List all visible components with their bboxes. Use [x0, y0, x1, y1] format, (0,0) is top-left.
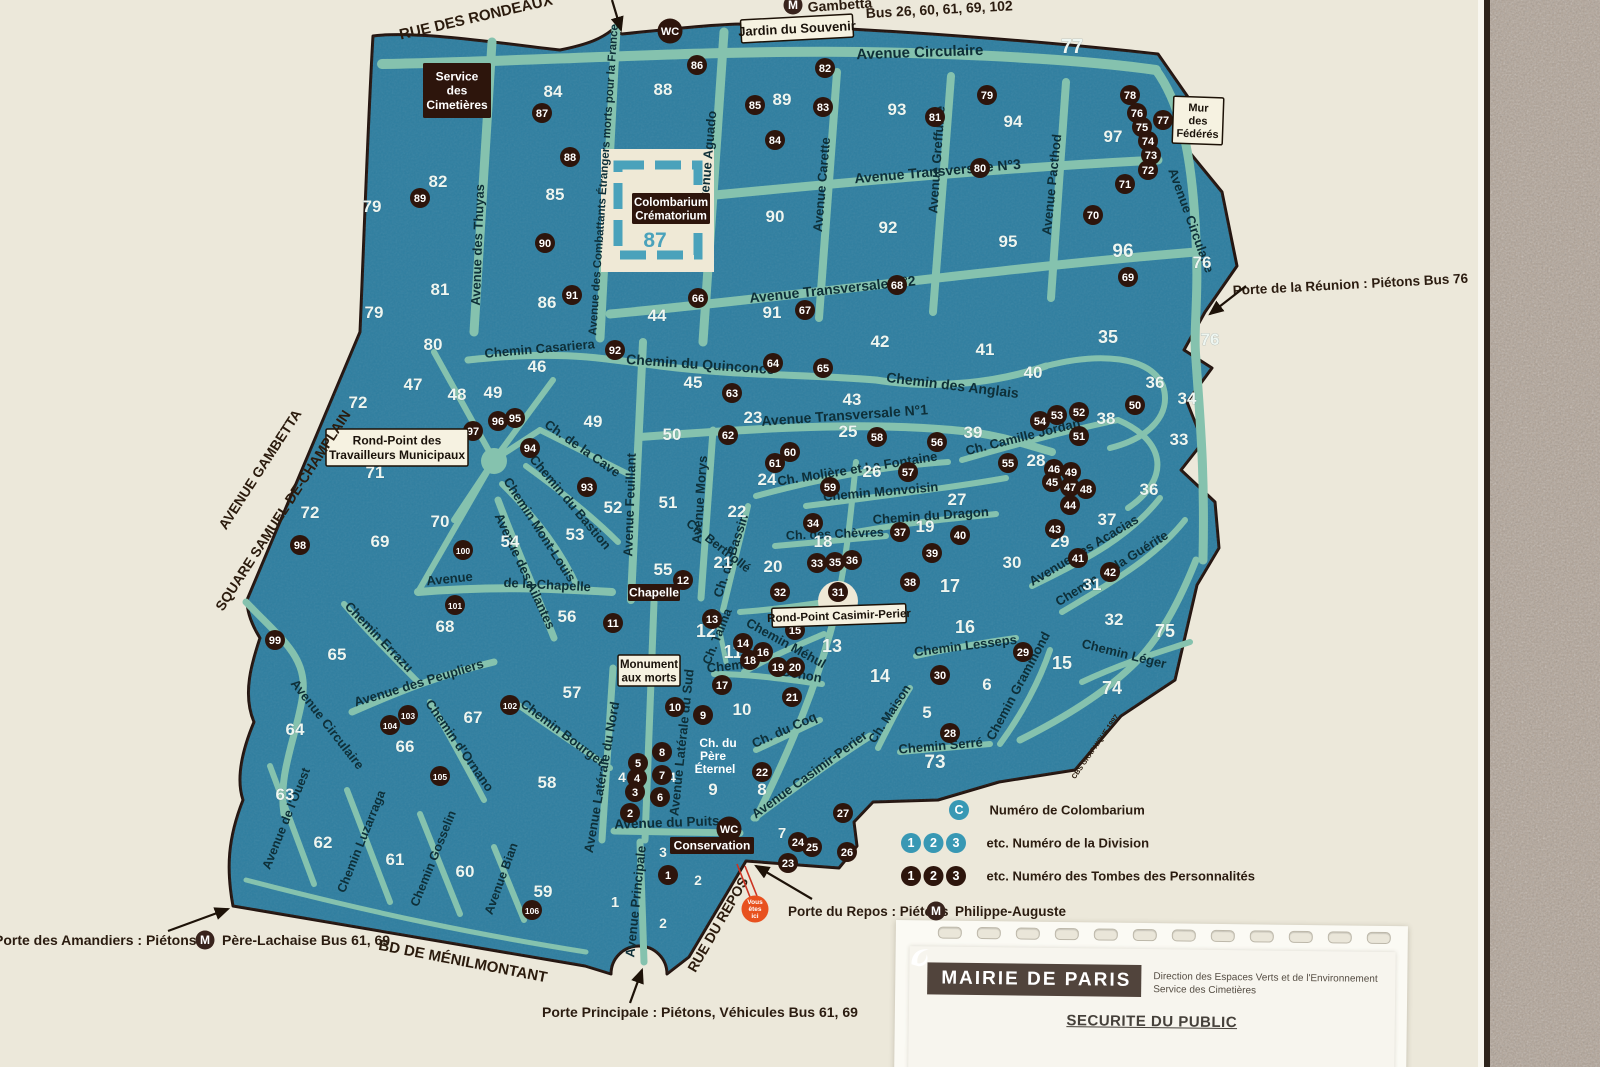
tomb-marker: 67 [795, 300, 815, 320]
svg-text:19: 19 [772, 662, 784, 674]
dark-sign: Conservation [670, 837, 754, 854]
division-number: 79 [363, 197, 382, 216]
division-number: 8 [757, 780, 766, 799]
dark-sign: ColombariumCrématorium [632, 193, 710, 224]
svg-text:79: 79 [981, 90, 993, 102]
division-number: 38 [1097, 409, 1116, 428]
street-label: Ch. du [699, 736, 736, 750]
division-number: 2 [694, 872, 702, 888]
division-number: 60 [456, 862, 475, 881]
street-label: Éternel [695, 761, 736, 776]
colombarium-number: 87 [643, 229, 666, 252]
division-number: 72 [301, 503, 320, 522]
division-number: 48 [448, 385, 467, 404]
svg-text:44: 44 [1064, 500, 1077, 512]
tomb-marker: 96 [488, 411, 508, 431]
svg-text:53: 53 [1051, 410, 1063, 422]
svg-text:28: 28 [944, 728, 956, 740]
svg-text:56: 56 [931, 437, 943, 449]
division-number: 40 [1024, 363, 1043, 382]
gate-annotation: Porte Principale : Piétons, Véhicules Bu… [542, 1004, 858, 1020]
tomb-marker: 52 [1069, 402, 1089, 422]
division-number: 76 [1193, 253, 1212, 272]
svg-text:92: 92 [609, 345, 621, 357]
svg-text:40: 40 [954, 530, 966, 542]
tomb-marker: 30 [930, 665, 950, 685]
svg-text:3: 3 [632, 787, 638, 799]
division-number: 52 [604, 498, 623, 517]
tomb-marker: 26 [837, 842, 857, 862]
department-lines: Direction des Espaces Verts et de l'Envi… [1153, 965, 1378, 999]
punched-hole [1328, 931, 1352, 943]
division-number: 14 [870, 666, 890, 686]
punched-hole [1250, 930, 1274, 942]
svg-text:WC: WC [661, 26, 679, 38]
tomb-marker: 45 [1042, 472, 1062, 492]
division-number: 33 [1170, 430, 1189, 449]
division-number: 89 [773, 90, 792, 109]
document-title: SECURITE DU PUBLIC [909, 1010, 1395, 1033]
svg-text:71: 71 [1119, 179, 1131, 191]
division-number: 20 [764, 557, 783, 576]
legend-label: Numéro de Colombarium [990, 803, 1145, 818]
svg-text:65: 65 [817, 363, 829, 375]
division-number: 80 [424, 335, 443, 354]
division-number: 67 [464, 708, 483, 727]
svg-text:88: 88 [564, 152, 576, 164]
svg-text:41: 41 [1072, 553, 1084, 565]
tomb-marker: 33 [807, 553, 827, 573]
svg-text:102: 102 [503, 701, 517, 711]
dark-sign: Chapelle [628, 584, 680, 601]
division-number: 93 [888, 100, 907, 119]
svg-text:86: 86 [691, 60, 703, 72]
svg-text:55: 55 [1002, 458, 1014, 470]
svg-text:105: 105 [433, 772, 447, 782]
tomb-marker: 81 [925, 107, 945, 127]
svg-text:106: 106 [525, 906, 539, 916]
division-number: 49 [584, 412, 603, 431]
punched-hole [1016, 927, 1040, 939]
division-number: 44 [648, 306, 667, 325]
division-number: 46 [528, 357, 547, 376]
svg-text:91: 91 [566, 290, 578, 302]
tomb-marker: 62 [718, 425, 738, 445]
dept-line-2: Service des Cimetières [1153, 983, 1377, 999]
tomb-marker: 79 [977, 85, 997, 105]
division-number: 41 [976, 340, 995, 359]
sign-text: Conservation [674, 839, 751, 853]
svg-text:72: 72 [1142, 165, 1154, 177]
mairie-title: MAIRIE DE PARIS [941, 968, 1131, 992]
svg-text:77: 77 [1157, 115, 1169, 127]
tomb-marker: 82 [815, 58, 835, 78]
cemetery-map-photo: Avenue CirculaireAvenue Transversale N°3… [0, 0, 1600, 1067]
division-number: 6 [982, 675, 991, 694]
svg-text:20: 20 [789, 662, 801, 674]
tomb-marker: 70 [1083, 205, 1103, 225]
division-number: 57 [563, 683, 582, 702]
tomb-marker: 56 [927, 432, 947, 452]
sign-text: Colombarium [634, 197, 708, 209]
division-number: 95 [999, 232, 1018, 251]
svg-text:84: 84 [769, 135, 782, 147]
svg-text:82: 82 [819, 63, 831, 75]
legend-label: etc. Numéro de la Division [987, 836, 1150, 851]
division-number: 23 [744, 408, 763, 427]
svg-text:73: 73 [1145, 150, 1157, 162]
gate-annotation: Philippe-Auguste [955, 904, 1066, 919]
tomb-marker: 65 [813, 358, 833, 378]
division-number: 32 [1105, 610, 1124, 629]
svg-text:67: 67 [799, 305, 811, 317]
tomb-marker: 35 [825, 552, 845, 572]
tomb-marker: 102 [500, 695, 520, 715]
tomb-marker: 44 [1060, 495, 1080, 515]
division-number: 45 [684, 373, 703, 392]
svg-text:33: 33 [811, 558, 823, 570]
division-number: 70 [431, 512, 450, 531]
division-number: 1 [611, 894, 619, 911]
gate-annotation: Porte des Amandiers : Piétons [0, 932, 197, 948]
punched-hole [1367, 932, 1391, 944]
tomb-marker: 24 [788, 832, 808, 852]
svg-text:100: 100 [456, 546, 470, 556]
svg-text:61: 61 [769, 458, 781, 470]
metro-icon: M [927, 902, 946, 921]
tomb-marker: 98 [290, 535, 310, 555]
wall-seam [1484, 0, 1491, 1067]
svg-text:26: 26 [841, 847, 853, 859]
svg-text:36: 36 [846, 555, 858, 567]
tomb-marker: 40 [950, 525, 970, 545]
tomb-marker: 63 [722, 383, 742, 403]
svg-text:21: 21 [786, 692, 798, 704]
tomb-marker: 23 [778, 853, 798, 873]
division-number: 5 [922, 703, 931, 722]
tomb-marker: 13 [702, 609, 722, 629]
svg-text:Vous: Vous [747, 899, 763, 906]
tomb-marker: 14 [733, 633, 753, 653]
document-sleeve: MAIRIE DE PARIS Direction des Espaces Ve… [894, 920, 1408, 1067]
svg-text:57: 57 [902, 467, 914, 479]
svg-text:103: 103 [401, 711, 415, 721]
division-number: 97 [1104, 127, 1123, 146]
division-number: 3 [659, 844, 667, 860]
tomb-marker: 21 [782, 687, 802, 707]
svg-text:69: 69 [1122, 272, 1134, 284]
punched-hole [977, 927, 1001, 939]
tomb-marker: 2 [620, 803, 640, 823]
sign-edge [1478, 0, 1485, 1067]
division-number: 82 [429, 172, 448, 191]
svg-text:85: 85 [749, 100, 761, 112]
svg-text:96: 96 [492, 416, 504, 428]
tomb-marker: 95 [505, 408, 525, 428]
division-number: 94 [1004, 112, 1023, 131]
svg-text:39: 39 [926, 548, 938, 560]
tomb-marker: 28 [940, 723, 960, 743]
svg-text:êtes: êtes [748, 906, 761, 913]
document-paper: MAIRIE DE PARIS Direction des Espaces Ve… [908, 946, 1396, 1067]
division-number: 39 [964, 423, 983, 442]
tomb-marker: 1 [658, 865, 678, 885]
legend-label: etc. Numéro des Tombes des Personnalités [987, 869, 1256, 884]
svg-text:C: C [954, 803, 963, 817]
tomb-marker: 34 [803, 513, 823, 533]
tomb-marker: 53 [1047, 405, 1067, 425]
svg-text:1: 1 [908, 869, 915, 883]
svg-text:1: 1 [908, 836, 915, 850]
tomb-marker: 69 [1118, 267, 1138, 287]
division-number: 27 [948, 490, 967, 509]
tomb-marker: 85 [745, 95, 765, 115]
division-number: 37 [1098, 510, 1117, 529]
svg-text:63: 63 [726, 388, 738, 400]
division-number: 26 [863, 462, 882, 481]
svg-text:42: 42 [1104, 567, 1116, 579]
svg-text:31: 31 [832, 587, 844, 599]
svg-text:47: 47 [1064, 482, 1076, 494]
svg-text:93: 93 [581, 482, 593, 494]
svg-text:2: 2 [627, 808, 633, 820]
svg-text:35: 35 [829, 557, 841, 569]
punched-hole [938, 927, 962, 939]
division-number: 69 [371, 532, 390, 551]
division-number: 10 [733, 700, 752, 719]
tomb-marker: 77 [1153, 110, 1173, 130]
svg-text:14: 14 [737, 638, 750, 650]
tomb-marker: 89 [410, 188, 430, 208]
division-number: 19 [916, 517, 935, 536]
division-number: 88 [654, 80, 673, 99]
svg-text:9: 9 [700, 710, 706, 722]
punched-hole [1211, 930, 1235, 942]
division-number: 92 [879, 218, 898, 237]
svg-text:13: 13 [706, 614, 718, 626]
dark-sign: ServicedesCimetières [423, 63, 491, 118]
division-number: 47 [404, 375, 423, 394]
svg-text:87: 87 [536, 108, 548, 120]
svg-text:6: 6 [657, 792, 663, 804]
tomb-marker: 64 [763, 353, 783, 373]
division-number: 17 [940, 576, 960, 596]
svg-text:7: 7 [659, 770, 665, 782]
rondpoint-travailleurs [481, 448, 507, 474]
division-number: 96 [1112, 241, 1133, 262]
division-number: 62 [314, 833, 333, 852]
division-number: 55 [654, 560, 673, 579]
svg-text:WC: WC [720, 824, 738, 836]
svg-text:45: 45 [1046, 477, 1058, 489]
division-number: 54 [501, 532, 520, 551]
mairie-logo-icon [909, 946, 931, 968]
tomb-marker: 54 [1030, 411, 1050, 431]
white-sign: MurdesFédérés [1172, 96, 1224, 145]
division-number: 15 [1052, 653, 1072, 673]
svg-text:1: 1 [665, 870, 671, 882]
division-number: 16 [955, 617, 975, 637]
sign-text: Chapelle [629, 586, 679, 600]
sign-text: Service [436, 70, 479, 84]
svg-text:94: 94 [524, 443, 537, 455]
division-number: 73 [924, 752, 945, 773]
punched-hole [1094, 928, 1118, 940]
tomb-marker: 58 [867, 427, 887, 447]
division-number: 13 [822, 636, 842, 656]
svg-text:68: 68 [891, 280, 903, 292]
tomb-marker: 57 [898, 462, 918, 482]
svg-text:3: 3 [953, 869, 960, 883]
tomb-marker: 47 [1060, 477, 1080, 497]
tomb-marker: 91 [562, 285, 582, 305]
svg-text:16: 16 [757, 647, 769, 659]
svg-text:66: 66 [692, 293, 704, 305]
sign-text: Cimetières [426, 98, 488, 112]
tomb-marker: 43 [1045, 519, 1065, 539]
division-number: 79 [365, 303, 384, 322]
tomb-marker: 16 [753, 642, 773, 662]
tomb-marker: 92 [605, 340, 625, 360]
division-number: 58 [538, 773, 557, 792]
tomb-marker: 78 [1120, 85, 1140, 105]
svg-text:59: 59 [824, 482, 836, 494]
svg-text:49: 49 [1065, 467, 1077, 479]
white-sign: Rond-Point Casimir-Perier [767, 603, 912, 627]
svg-text:81: 81 [929, 112, 941, 124]
tomb-marker: 36 [842, 550, 862, 570]
sleeve-punched-holes [896, 924, 1408, 946]
tomb-marker: 68 [887, 275, 907, 295]
map-canvas: Avenue CirculaireAvenue Transversale N°3… [0, 0, 1600, 1067]
svg-text:10: 10 [669, 702, 681, 714]
division-number: 77 [1061, 36, 1083, 58]
svg-text:5: 5 [635, 758, 641, 770]
svg-text:89: 89 [414, 193, 426, 205]
division-number: 30 [1003, 553, 1022, 572]
svg-text:54: 54 [1034, 416, 1047, 428]
sign-text: Fédérés [1176, 128, 1219, 141]
tomb-marker: 38 [900, 572, 920, 592]
punched-hole [1289, 931, 1313, 943]
tomb-marker: 72 [1138, 160, 1158, 180]
division-number: 90 [766, 207, 785, 226]
svg-text:104: 104 [383, 721, 397, 731]
division-number: 7 [778, 825, 786, 842]
division-number: 68 [436, 617, 455, 636]
division-number: 63 [276, 785, 295, 804]
svg-text:22: 22 [756, 767, 768, 779]
tomb-marker: 39 [922, 543, 942, 563]
svg-text:78: 78 [1124, 90, 1136, 102]
tomb-marker: 71 [1115, 174, 1135, 194]
tomb-marker: 86 [687, 55, 707, 75]
svg-text:27: 27 [837, 808, 849, 820]
division-number: 36 [1140, 480, 1159, 499]
division-number: 28 [1027, 451, 1046, 470]
tomb-marker: 51 [1069, 426, 1089, 446]
svg-text:23: 23 [782, 858, 794, 870]
svg-text:80: 80 [974, 163, 986, 175]
division-number: 72 [349, 393, 368, 412]
svg-text:37: 37 [894, 527, 906, 539]
division-number: 21 [714, 553, 733, 572]
division-number: 42 [871, 332, 890, 351]
tomb-marker: 50 [1125, 395, 1145, 415]
tomb-marker: 37 [890, 522, 910, 542]
sign-text: Monument [620, 659, 678, 671]
granite-texture [1490, 0, 1600, 1067]
punched-hole [1172, 929, 1196, 941]
sign-text: Travailleurs Municipaux [329, 448, 465, 462]
mairie-banner: MAIRIE DE PARIS [927, 962, 1141, 997]
tomb-marker: 9 [693, 705, 713, 725]
svg-text:83: 83 [817, 102, 829, 114]
tomb-marker: 55 [998, 453, 1018, 473]
svg-text:58: 58 [871, 432, 883, 444]
tomb-marker: 66 [688, 288, 708, 308]
division-number: 36 [1146, 373, 1165, 392]
tomb-marker: 104 [380, 715, 400, 735]
division-number: 35 [1098, 327, 1118, 347]
tomb-marker: 22 [752, 762, 772, 782]
svg-text:48: 48 [1080, 484, 1092, 496]
svg-text:3: 3 [953, 836, 960, 850]
svg-text:2: 2 [930, 836, 937, 850]
sign-text: Mur [1188, 102, 1209, 115]
tomb-marker: 41 [1068, 548, 1088, 568]
svg-text:95: 95 [509, 413, 521, 425]
division-number: 49 [484, 383, 503, 402]
tomb-marker: 93 [577, 477, 597, 497]
svg-text:60: 60 [784, 447, 796, 459]
svg-text:ici: ici [751, 913, 758, 920]
tomb-marker: 3 [625, 782, 645, 802]
svg-text:34: 34 [807, 518, 820, 530]
tomb-marker: 6 [650, 787, 670, 807]
division-number: 76 [1201, 330, 1220, 349]
tomb-marker: 83 [813, 97, 833, 117]
division-number: 91 [763, 303, 782, 322]
division-number: 84 [544, 82, 563, 101]
division-number: 25 [839, 422, 858, 441]
svg-text:11: 11 [607, 618, 619, 630]
gate-annotation: Père-Lachaise Bus 61, 69 [222, 932, 390, 948]
svg-text:2: 2 [930, 869, 937, 883]
svg-text:43: 43 [1049, 524, 1061, 536]
division-number: 66 [396, 737, 415, 756]
tomb-marker: 31 [828, 582, 848, 602]
svg-text:98: 98 [294, 540, 306, 552]
tomb-marker: 11 [603, 613, 623, 633]
division-number: 51 [659, 493, 678, 512]
svg-text:101: 101 [448, 601, 462, 611]
tomb-marker: 59 [820, 477, 840, 497]
svg-text:17: 17 [716, 680, 728, 692]
tomb-marker: 27 [833, 803, 853, 823]
tomb-marker: 19 [768, 657, 788, 677]
wc-icon: WC [658, 19, 683, 44]
metro-icon: M [196, 931, 215, 950]
division-number: 56 [558, 607, 577, 626]
svg-text:M: M [931, 904, 941, 918]
tomb-marker: 80 [970, 158, 990, 178]
you-are-here-badge: Vousêtesici [742, 896, 769, 923]
tomb-marker: 42 [1100, 562, 1120, 582]
tomb-marker: 105 [430, 766, 450, 786]
street-label: Père [700, 749, 726, 763]
division-number: 9 [708, 780, 717, 799]
